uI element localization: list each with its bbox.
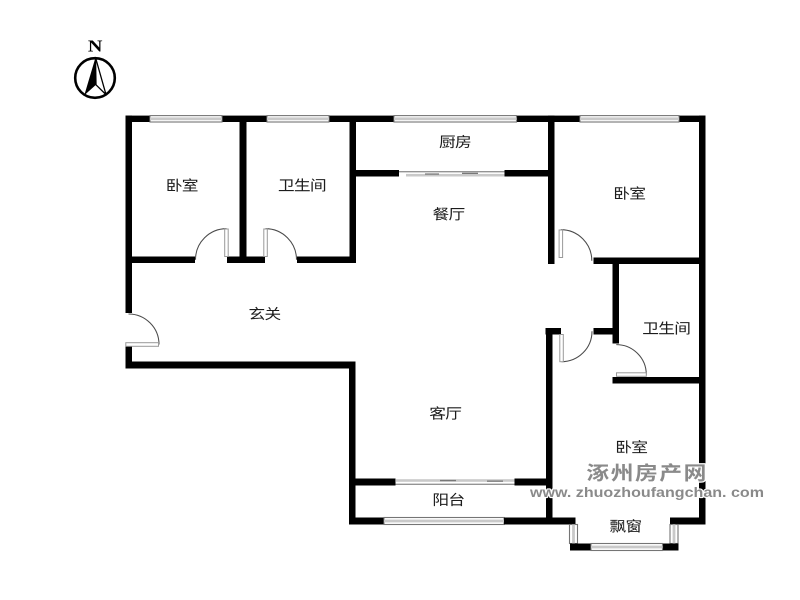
svg-text:www. zhuozhoufangchan. com: www. zhuozhoufangchan. com [529,485,764,500]
svg-text:N: N [88,37,103,55]
